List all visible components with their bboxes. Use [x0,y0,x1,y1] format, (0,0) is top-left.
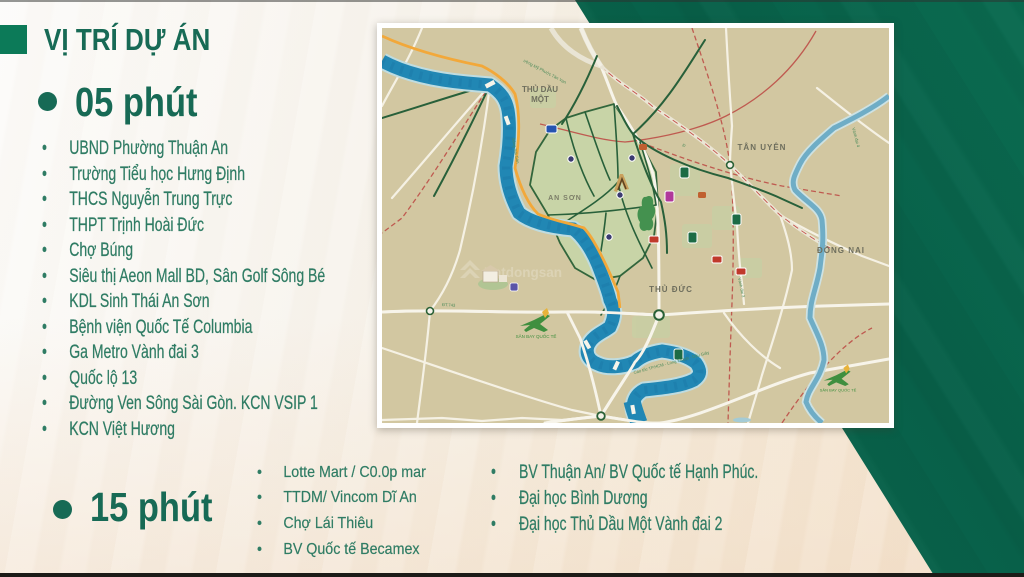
svg-text:SÂN BAY QUỐC TẾ: SÂN BAY QUỐC TẾ [820,387,857,392]
svg-text:ĐỒNG NAI: ĐỒNG NAI [817,245,865,255]
svg-text:ĐT.743: ĐT.743 [442,302,456,308]
svg-text:TÂN UYÊN: TÂN UYÊN [738,143,787,152]
svg-text:AN SƠN: AN SƠN [548,195,582,202]
svg-text:THỦ ĐỨC: THỦ ĐỨC [649,285,693,294]
svg-text:SÂN BAY QUỐC TẾ: SÂN BAY QUỐC TẾ [516,333,557,339]
svg-text:THỦ DẦU: THỦ DẦU [522,84,558,94]
svg-text:MỘT: MỘT [531,95,549,104]
